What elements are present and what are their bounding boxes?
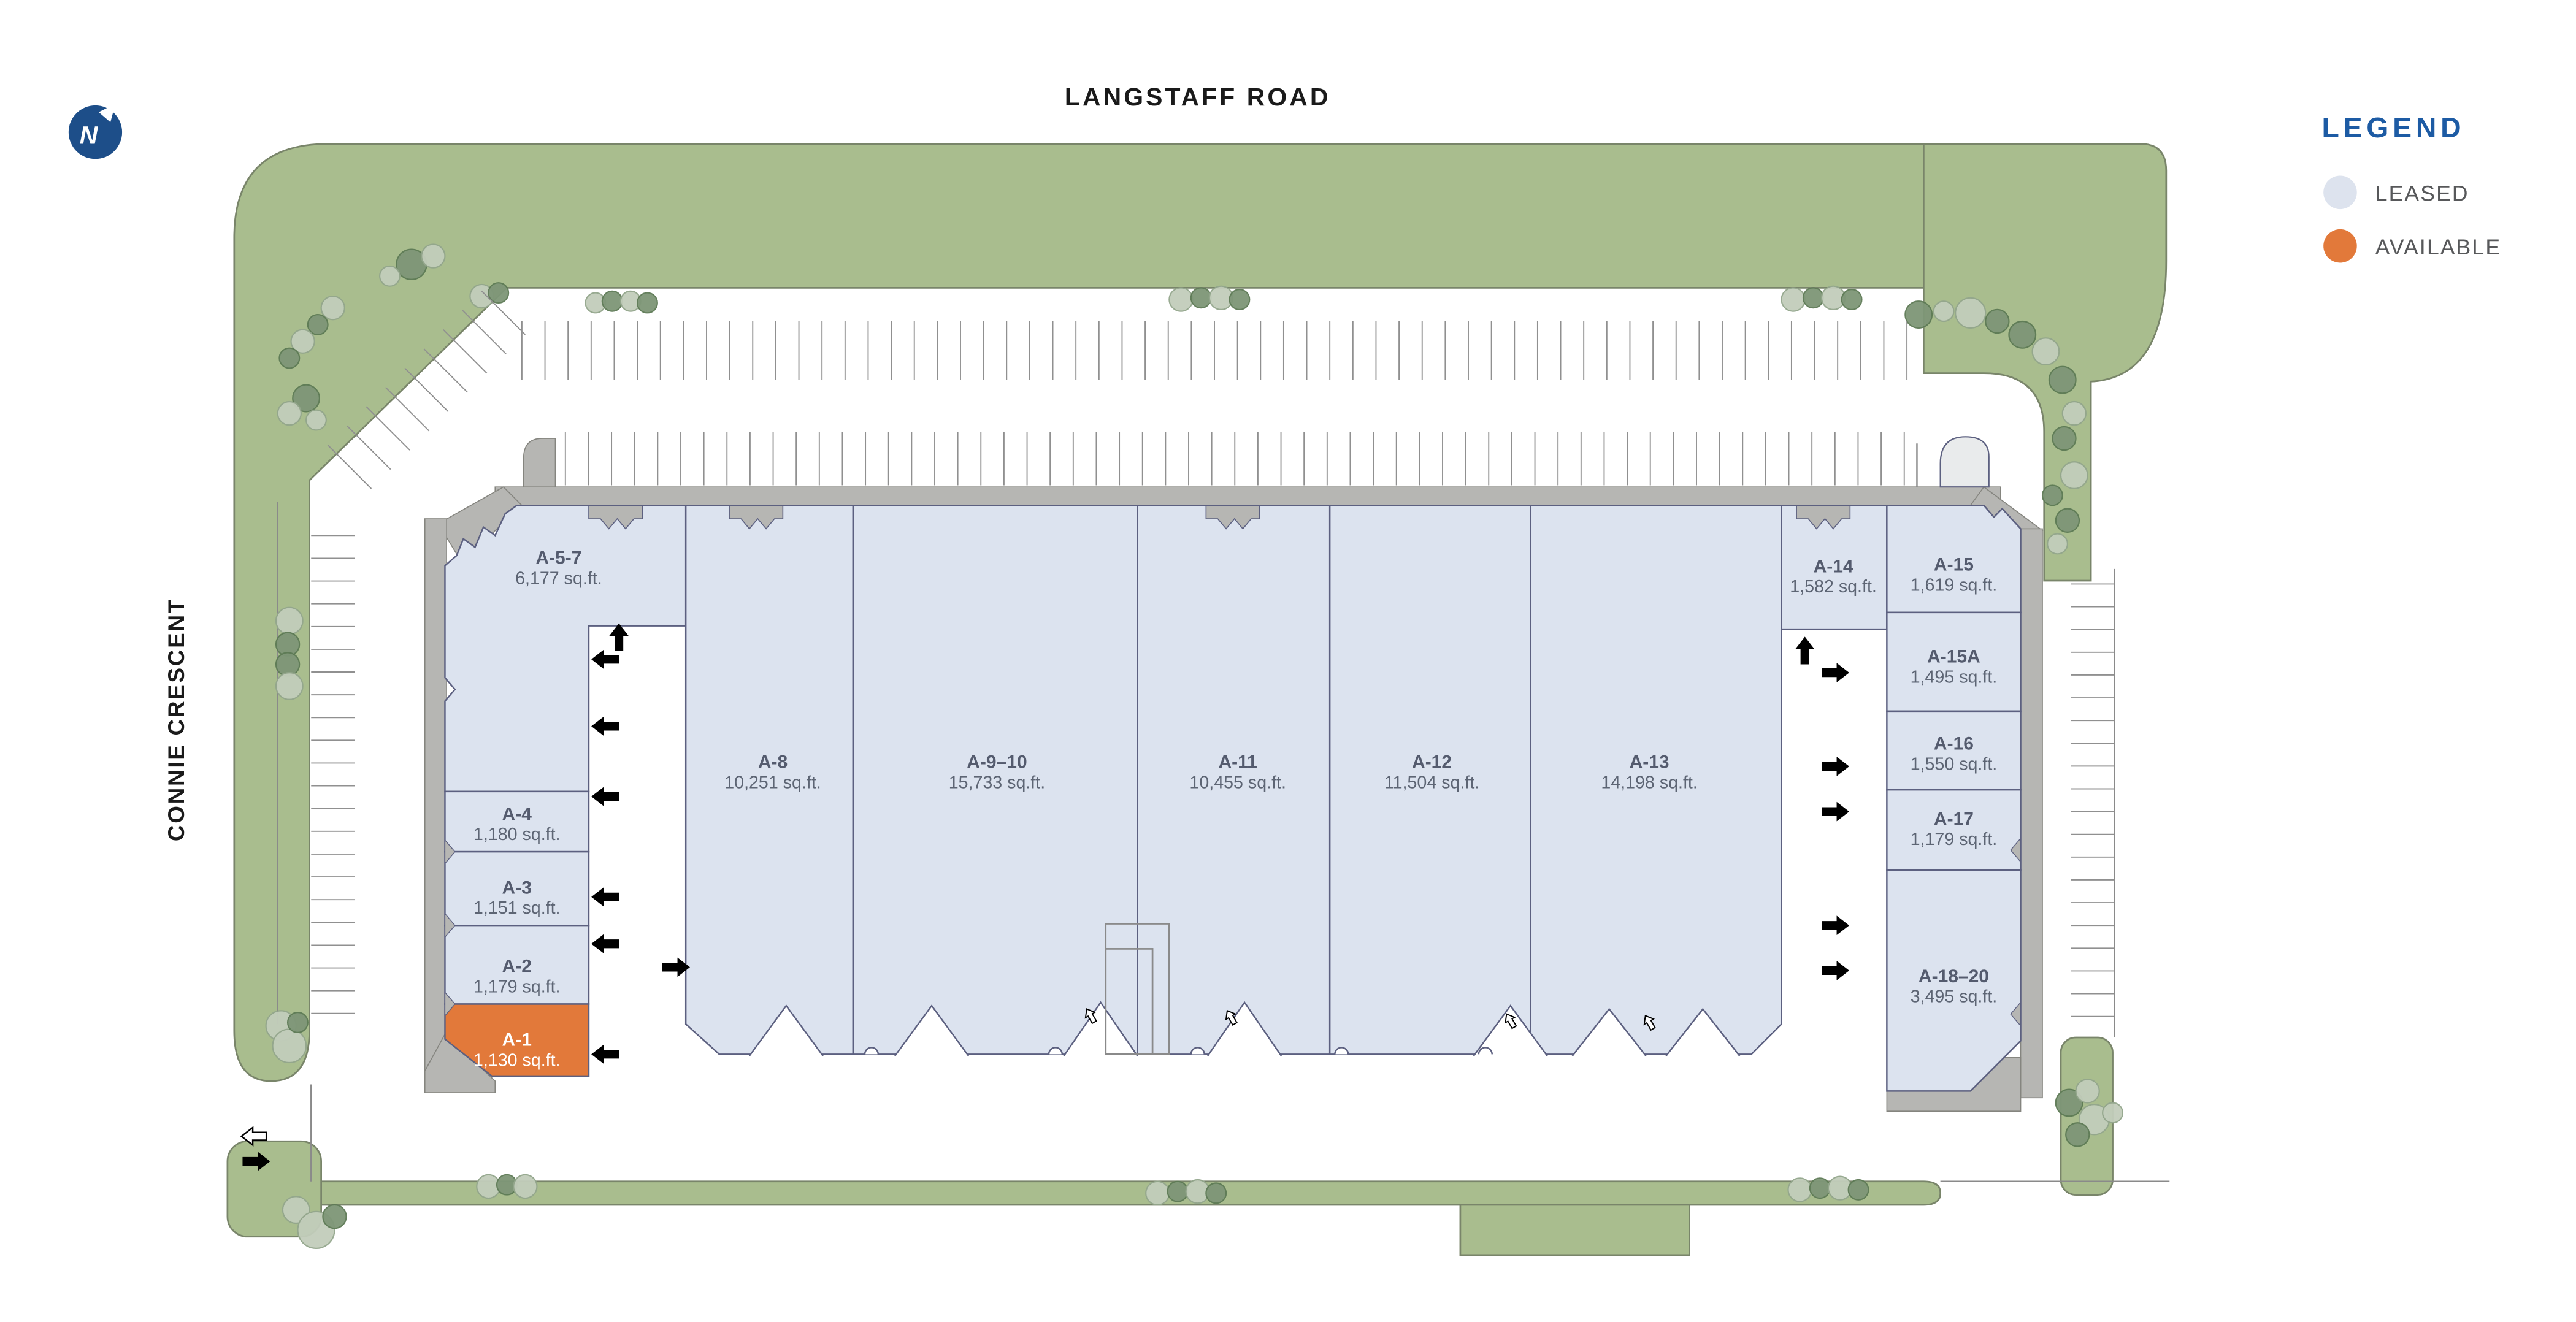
entrance-arrow-right — [1822, 757, 1849, 776]
entrance-arrow-left — [591, 787, 619, 806]
unit-sqft: 1,550 sq.ft. — [1911, 754, 1998, 774]
street-label-connie: CONNIE CRESCENT — [164, 598, 189, 841]
unit-label: A-15A — [1927, 647, 1980, 667]
entry-canopy — [1941, 437, 1989, 487]
units-layer — [445, 505, 2020, 1091]
entrance-arrow-left — [591, 934, 619, 953]
legend-label-available: AVAILABLE — [2375, 235, 2501, 259]
entrance-arrow-left — [591, 717, 619, 736]
unit-label: A-15 — [1934, 555, 1974, 575]
unit-label: A-9–10 — [967, 752, 1027, 773]
unit-sqft: 1,151 sq.ft. — [473, 898, 561, 918]
unit-label: A-17 — [1934, 809, 1974, 829]
unit-sqft: 14,198 sq.ft. — [1601, 773, 1698, 792]
unit-sqft: 10,455 sq.ft. — [1189, 773, 1286, 792]
unit-sqft: 11,504 sq.ft. — [1384, 773, 1479, 792]
legend-title: LEGEND — [2321, 112, 2465, 143]
north-letter: N — [80, 121, 99, 150]
entrance-arrow-left — [591, 887, 619, 907]
entrance-arrow-right — [1822, 961, 1849, 980]
unit-sqft: 3,495 sq.ft. — [1911, 987, 1998, 1007]
unit-sqft: 6,177 sq.ft. — [515, 568, 602, 588]
legend-label-leased: LEASED — [2375, 181, 2469, 205]
entrance-arrow-right — [1822, 802, 1849, 822]
unit-label: A-1 — [502, 1030, 532, 1050]
unit-label: A-12 — [1412, 752, 1452, 773]
entrance-arrow-left — [591, 1045, 619, 1064]
unit-label: A-18–20 — [1919, 966, 1989, 987]
site-plan: A-5-7 6,177 sq.ft. A-4 1,180 sq.ft. A-3 … — [0, 0, 2576, 1322]
legend-swatch-leased — [2323, 176, 2357, 210]
parking-endcap — [524, 438, 556, 487]
unit-label: A-4 — [502, 804, 532, 824]
unit-label: A-13 — [1630, 752, 1669, 773]
unit-sqft: 1,130 sq.ft. — [473, 1050, 561, 1070]
unit-label: A-14 — [1814, 556, 1853, 576]
entrance-arrow-up — [609, 624, 629, 651]
unit-label: A-8 — [758, 752, 788, 773]
entrance-arrow-right — [1822, 915, 1849, 935]
unit-label: A-3 — [502, 877, 532, 898]
unit-label: A-2 — [502, 957, 532, 977]
green-bottom-pad — [1460, 1205, 1690, 1255]
entrance-arrow-left — [591, 649, 619, 669]
entrance-arrow-right — [1822, 663, 1849, 682]
unit-sqft: 1,180 sq.ft. — [473, 825, 561, 844]
unit-sqft: 1,495 sq.ft. — [1911, 667, 1998, 687]
unit-label: A-5-7 — [535, 548, 581, 568]
legend-swatch-available — [2323, 229, 2357, 263]
unit-sqft: 1,179 sq.ft. — [1911, 830, 1998, 849]
wall-top-band — [495, 487, 2001, 507]
unit-label: A-16 — [1934, 734, 1974, 754]
unit-sqft: 15,733 sq.ft. — [949, 773, 1046, 792]
unit-label: A-11 — [1219, 752, 1257, 773]
wall-left — [425, 519, 447, 1091]
legend: LEGEND LEASED AVAILABLE — [2321, 112, 2501, 263]
unit-sqft: 10,251 sq.ft. — [724, 773, 821, 792]
entrance-arrow-up — [1795, 636, 1815, 664]
north-arrow-icon: N — [69, 104, 122, 159]
unit-sqft: 1,582 sq.ft. — [1790, 577, 1877, 597]
unit-sqft: 1,179 sq.ft. — [473, 977, 561, 996]
street-label-langstaff: LANGSTAFF ROAD — [1065, 83, 1331, 111]
wall-right — [2021, 529, 2042, 1098]
unit-sqft: 1,619 sq.ft. — [1911, 575, 1998, 595]
